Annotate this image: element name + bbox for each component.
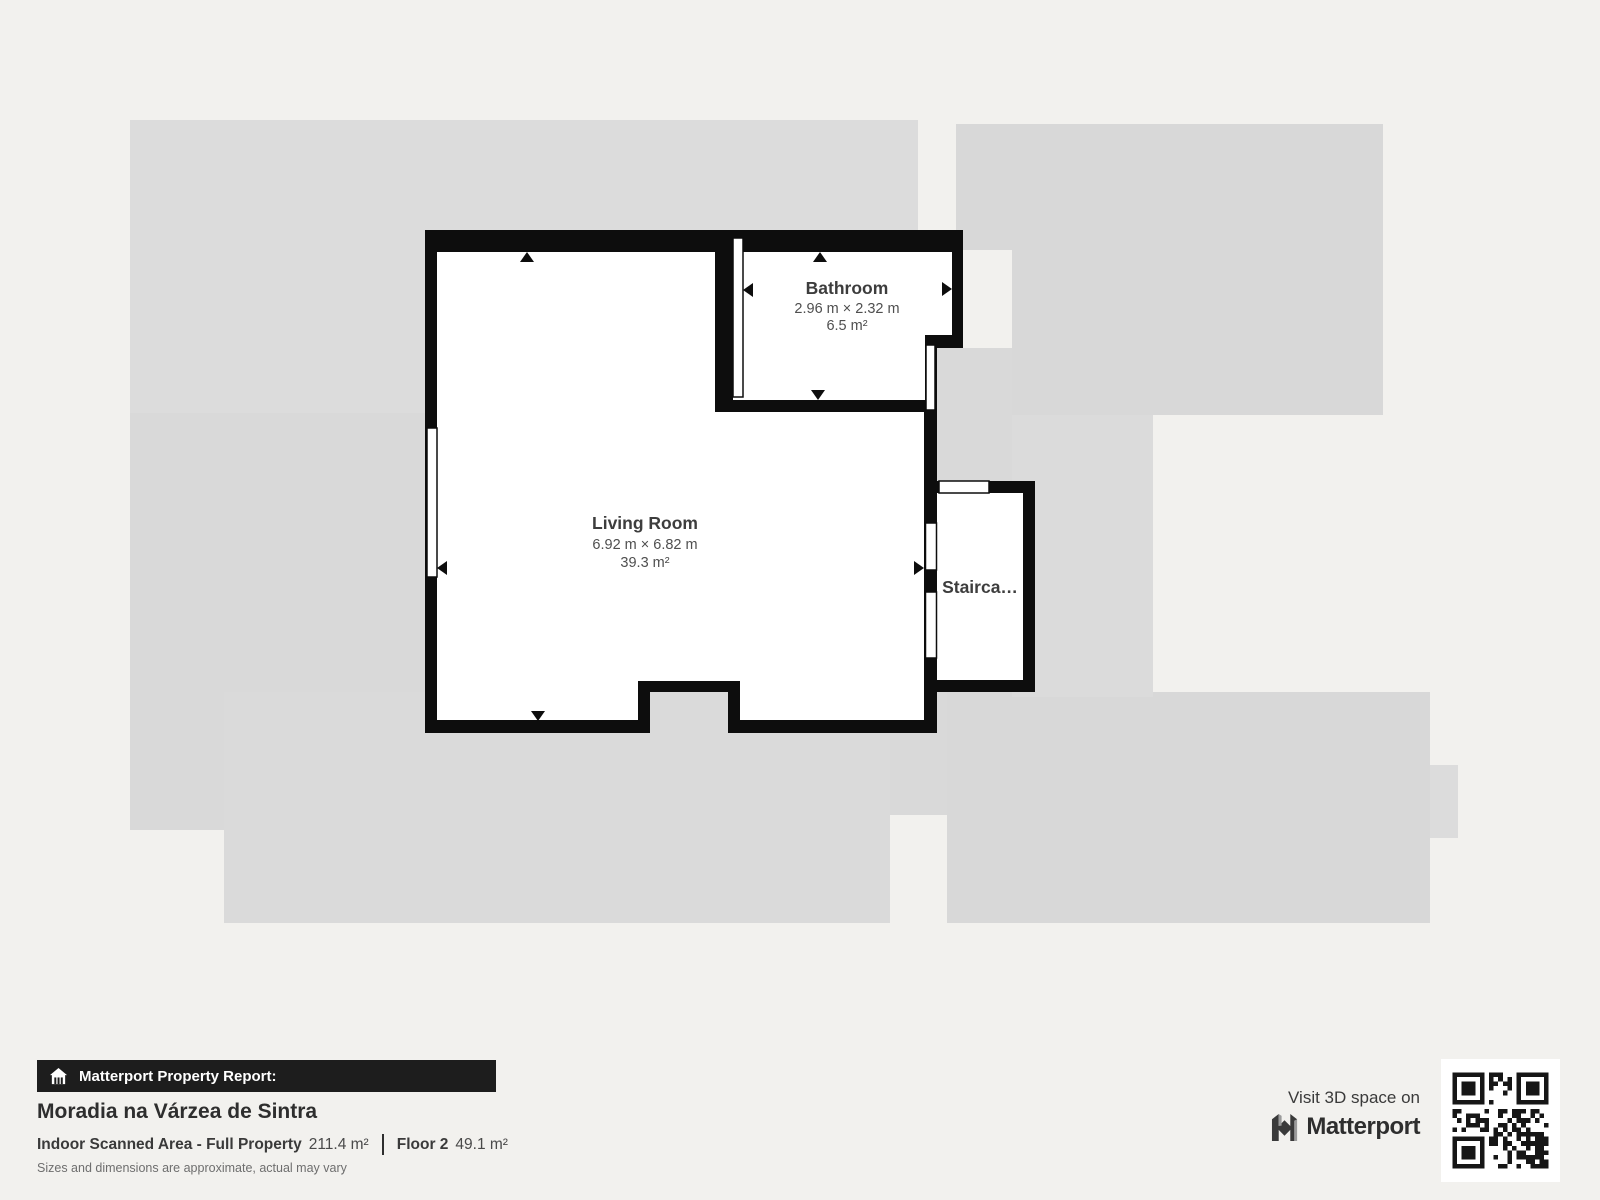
property-name: Moradia na Várzea de Sintra [37,1100,317,1124]
matterport-wordmark: Matterport [1306,1113,1420,1141]
wall-staircase-right [1023,481,1035,692]
living-room-name: Living Room [592,513,698,533]
living-room-area: 39.3 m² [620,555,669,571]
matterport-brand: Matterport [1230,1110,1420,1144]
room-living-room [718,412,924,720]
wall-top [425,230,963,252]
silhouette-block [1430,765,1458,838]
opening-staircase-left-lower [926,592,937,658]
area-stats: Indoor Scanned Area - Full Property 211.… [37,1134,508,1155]
wall-bathroom-left [715,230,733,412]
room-living-room [437,252,718,720]
window-living-left [427,428,437,577]
bottom-notch-void [650,692,728,733]
home-icon [49,1067,68,1086]
floor-label: Floor 2 [397,1136,449,1154]
staircase-name: Stairca… [942,577,1018,597]
wall-bathroom-right [952,230,963,348]
floor-area-value: 49.1 m² [455,1136,508,1154]
floorplan-canvas: Living Room 6.92 m × 6.82 m 39.3 m² Bath… [0,0,1600,1200]
bathroom-area: 6.5 m² [826,318,867,334]
wall-staircase-bottom [924,680,1035,692]
disclaimer-text: Sizes and dimensions are approximate, ac… [37,1161,347,1175]
qr-code [1441,1059,1560,1182]
room-bathroom [733,335,925,400]
visit-3d-label: Visit 3D space on [1288,1088,1420,1107]
qr-code-pattern [1452,1070,1549,1171]
door-bathroom-left [733,238,743,397]
report-header-bar: Matterport Property Report: [37,1060,496,1092]
opening-staircase-left-upper [926,523,937,570]
matterport-logo-icon [1271,1113,1298,1142]
silhouette-gap [963,250,1012,348]
window-bathroom-right [926,345,935,410]
silhouette-block [956,124,1383,415]
wall-bathroom-bottom [715,400,925,412]
silhouette-block [947,692,1430,923]
divider [382,1134,384,1155]
bathroom-dimensions: 2.96 m × 2.32 m [794,301,899,317]
living-room-dimensions: 6.92 m × 6.82 m [592,537,697,553]
bathroom-name: Bathroom [806,278,889,298]
scanned-area-label: Indoor Scanned Area - Full Property [37,1136,302,1154]
report-label: Matterport Property Report: [79,1068,277,1085]
scanned-area-value: 211.4 m² [309,1136,369,1154]
opening-staircase-top [939,481,989,493]
visit-3d-block: Visit 3D space on [1230,1088,1420,1108]
silhouette-block [937,348,1012,483]
